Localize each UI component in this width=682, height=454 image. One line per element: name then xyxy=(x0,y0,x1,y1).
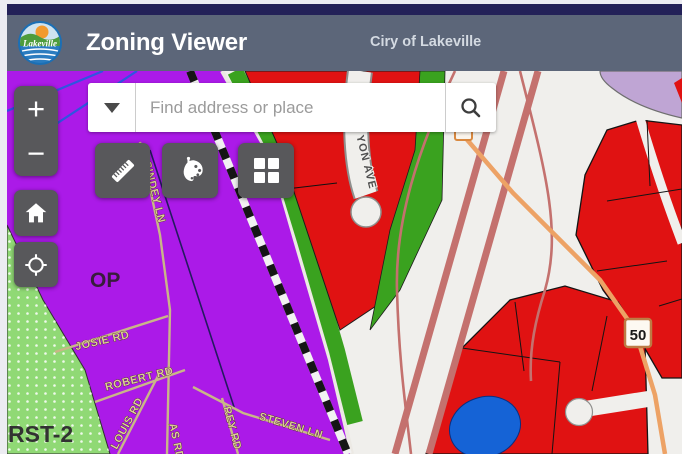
basemap-gallery-button[interactable] xyxy=(238,143,294,198)
search-source-dropdown[interactable] xyxy=(88,83,136,132)
home-button[interactable] xyxy=(14,190,58,236)
locate-crosshair-icon xyxy=(22,251,50,279)
minus-icon: − xyxy=(27,138,45,169)
highway-shield-50-label: 50 xyxy=(630,327,647,344)
top-navy-strip xyxy=(7,4,682,15)
plus-icon: + xyxy=(27,93,45,124)
lakeville-logo: Lakeville xyxy=(17,20,63,66)
measure-tool-button[interactable] xyxy=(95,143,150,198)
page-title: Zoning Viewer xyxy=(86,29,247,57)
draw-tool-button[interactable] xyxy=(162,143,218,198)
draw-palette-icon xyxy=(174,155,206,187)
page-subtitle: Ciry of Lakeville xyxy=(370,34,481,50)
cul-de-sac xyxy=(566,399,593,426)
zoom-in-button[interactable]: + xyxy=(14,86,58,131)
app-window: 50 SINDEY LN JOSIE RD ROBERT RD LOUIS RD… xyxy=(0,0,682,454)
locate-button[interactable] xyxy=(14,242,58,287)
zone-label-rst2: RST-2 xyxy=(8,421,73,447)
basemap-grid-icon xyxy=(254,158,279,183)
measure-ruler-icon xyxy=(107,155,139,187)
header-bar: Lakeville Zoning Viewer Ciry of Lakevill… xyxy=(7,15,682,71)
logo-text: Lakeville xyxy=(22,39,57,49)
zoom-control: + − xyxy=(14,86,58,176)
search-input[interactable] xyxy=(136,83,445,132)
magnifier-icon xyxy=(458,95,484,121)
zone-label-op: OP xyxy=(90,269,120,292)
search-bar xyxy=(88,83,496,132)
cul-de-sac-stem xyxy=(585,399,648,409)
dropdown-caret-icon xyxy=(104,103,120,113)
home-icon xyxy=(22,199,50,227)
search-button[interactable] xyxy=(445,83,496,132)
zoom-out-button[interactable]: − xyxy=(14,131,58,176)
cul-de-sac xyxy=(351,197,381,227)
